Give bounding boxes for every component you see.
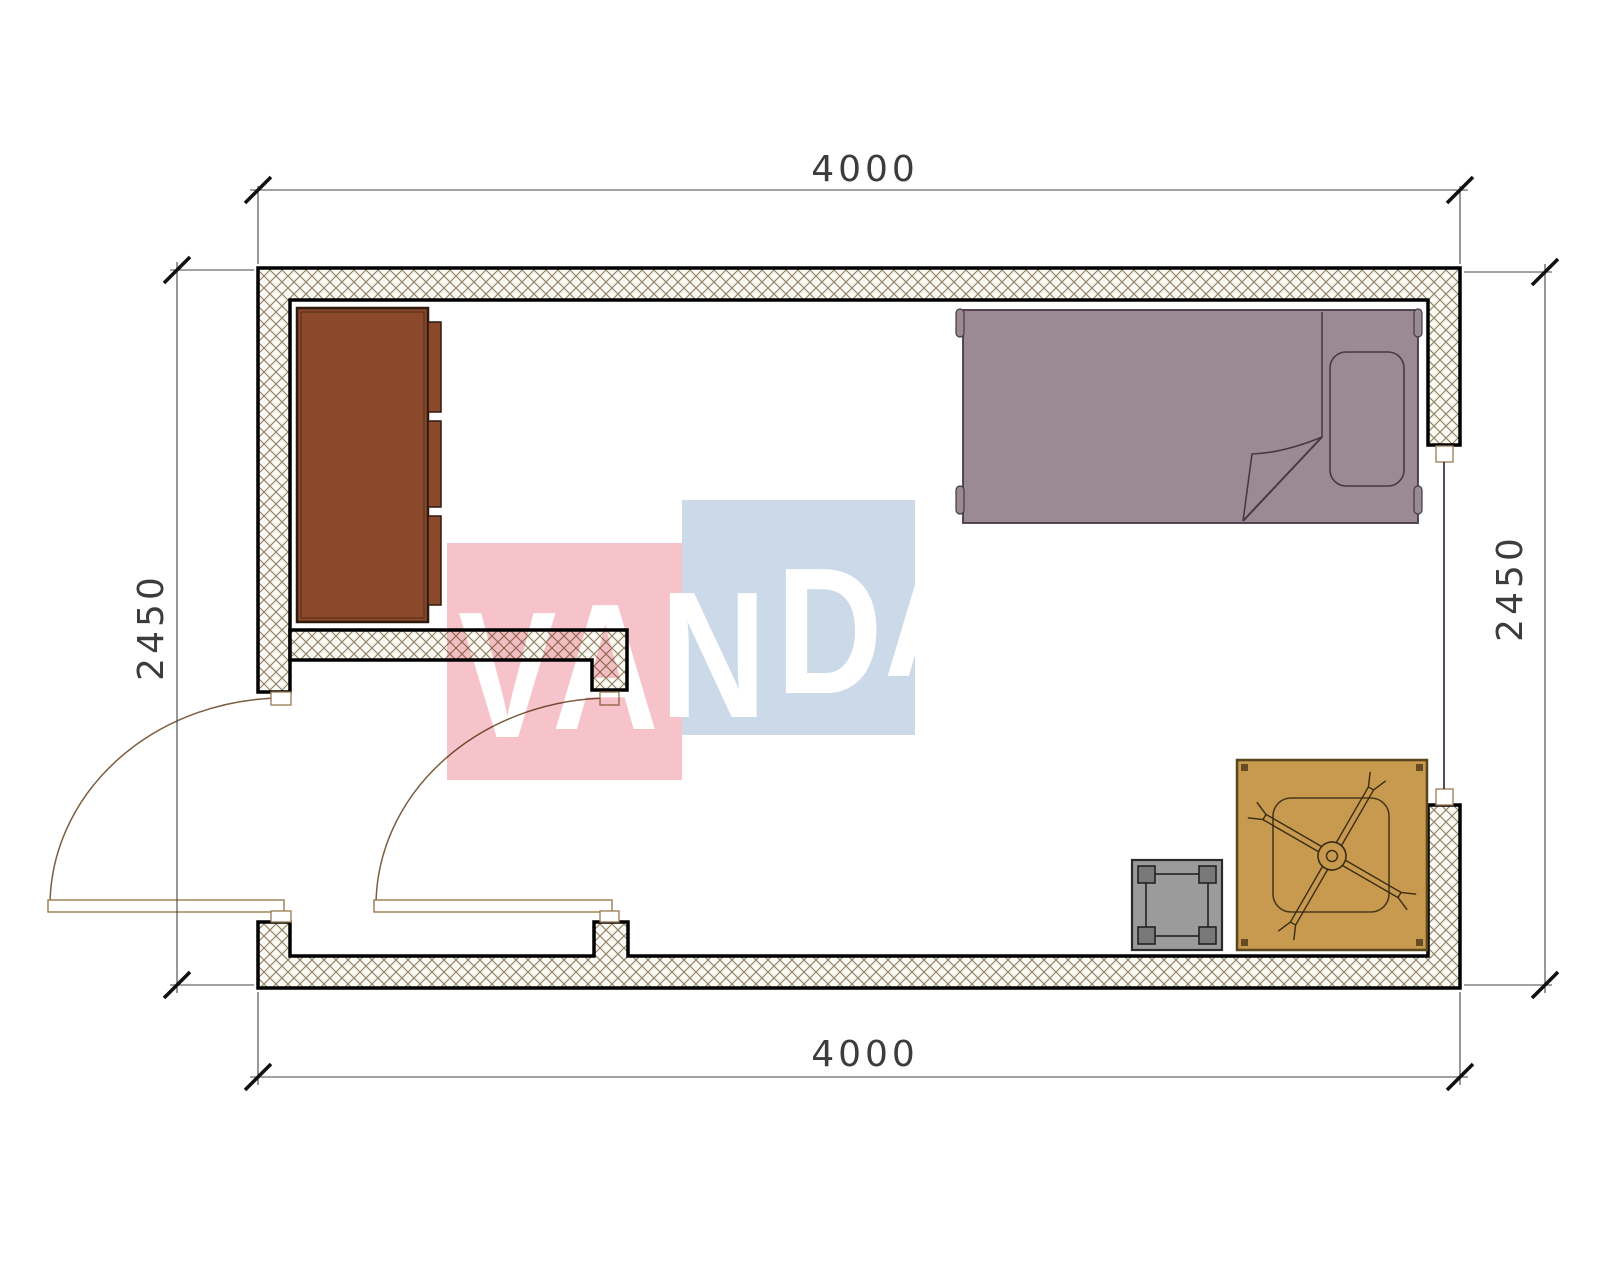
- door-swing-arc-middle: [376, 698, 612, 906]
- dim-text-bottom: 4000: [811, 1034, 919, 1075]
- bed-pillow: [1330, 352, 1404, 486]
- wardrobe-body: [297, 308, 428, 622]
- door-leaf-left: [48, 900, 284, 912]
- dim-text-top: 4000: [811, 149, 919, 190]
- wardrobe-door-panel: [428, 322, 441, 412]
- wardrobe: [297, 308, 441, 622]
- stool: [1132, 860, 1222, 950]
- door-jamb: [600, 692, 619, 705]
- bed-post: [956, 486, 964, 514]
- table-corner-mark: [1416, 939, 1423, 946]
- dim-text-right: 2450: [1490, 534, 1531, 642]
- bed-post: [1414, 309, 1422, 337]
- stool-leg: [1199, 866, 1216, 883]
- bed-post: [1414, 486, 1422, 514]
- window-jamb: [1436, 789, 1453, 805]
- dim-text-left: 2450: [131, 573, 172, 681]
- table-corner-mark: [1416, 764, 1423, 771]
- bed-post: [956, 309, 964, 337]
- plan-layer: 4000 4000 2450 2450: [0, 0, 1600, 1280]
- wall-interior-partition: [290, 630, 627, 690]
- window-jamb: [1436, 446, 1453, 462]
- door-jamb: [600, 911, 619, 922]
- floor-plan-canvas: V A N D A: [0, 0, 1600, 1280]
- wardrobe-door-panel: [428, 516, 441, 605]
- stool-leg: [1138, 927, 1155, 944]
- single-bed: [956, 309, 1422, 523]
- door-jamb: [271, 911, 291, 922]
- wardrobe-door-panel: [428, 421, 441, 507]
- table-corner-mark: [1241, 939, 1248, 946]
- door-jamb: [271, 692, 291, 705]
- door-leaf-middle: [374, 900, 612, 912]
- table-corner-mark: [1241, 764, 1248, 771]
- stool-leg: [1199, 927, 1216, 944]
- stool-leg: [1138, 866, 1155, 883]
- low-table: [1206, 730, 1457, 981]
- door-swing-arc-left: [50, 698, 284, 906]
